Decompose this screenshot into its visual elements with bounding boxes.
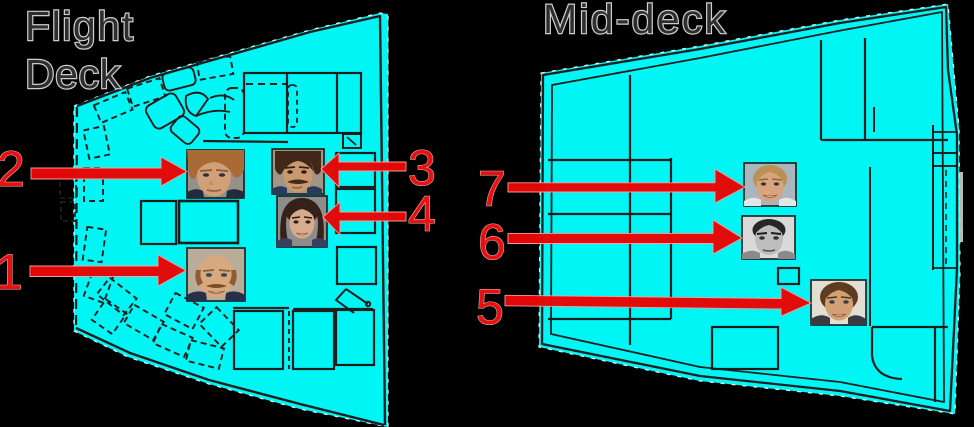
svg-text:Deck: Deck bbox=[25, 51, 121, 97]
svg-text:4: 4 bbox=[408, 186, 436, 242]
svg-text:2: 2 bbox=[0, 141, 25, 197]
svg-text:5: 5 bbox=[476, 279, 504, 335]
svg-text:1: 1 bbox=[0, 244, 23, 300]
svg-text:7: 7 bbox=[478, 161, 506, 217]
svg-text:6: 6 bbox=[478, 214, 506, 270]
svg-text:Flight: Flight bbox=[25, 3, 134, 49]
svg-text:Mid-deck: Mid-deck bbox=[543, 0, 726, 42]
